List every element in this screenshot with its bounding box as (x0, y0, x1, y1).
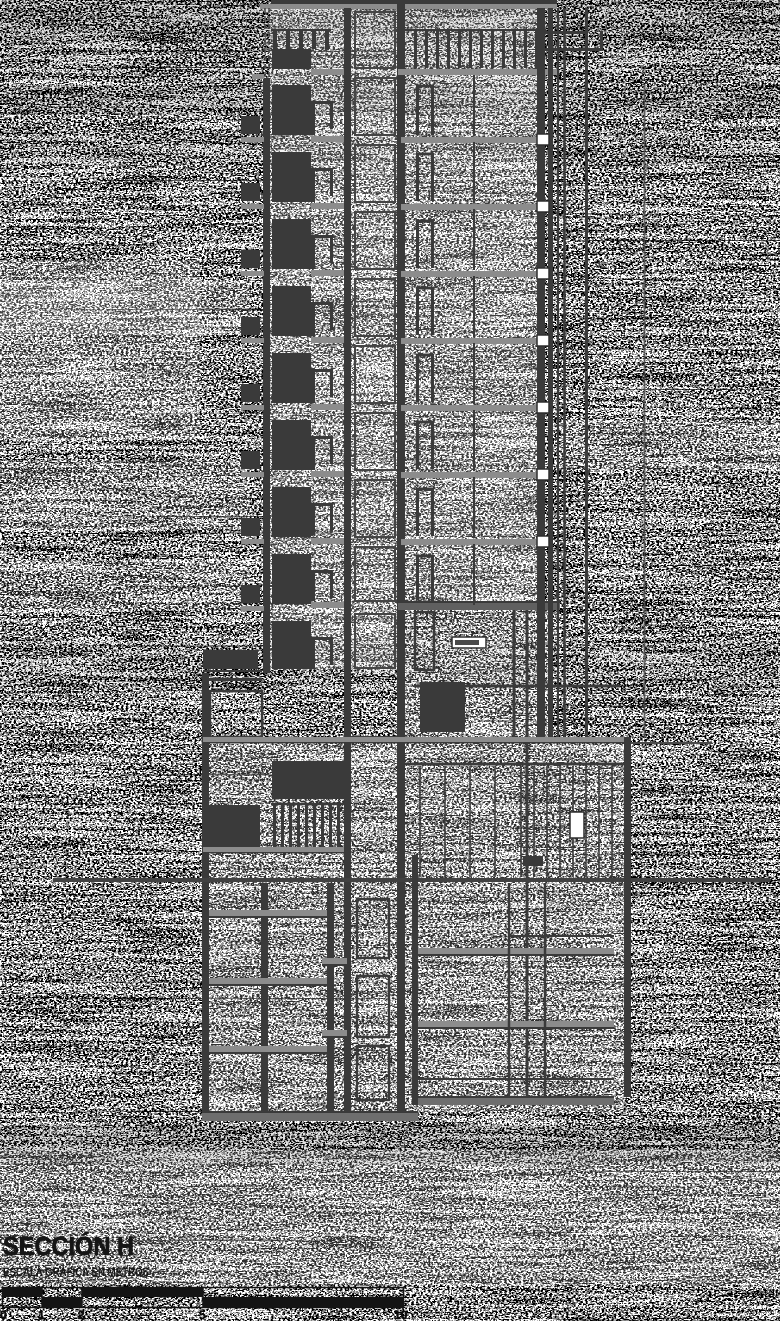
svg-text:0: 0 (0, 1308, 7, 1321)
svg-text:1: 1 (38, 1308, 45, 1321)
svg-text:10: 10 (394, 1308, 408, 1321)
svg-text:ESCALA GRÁFICA EN METROS: ESCALA GRÁFICA EN METROS (3, 1264, 149, 1279)
svg-text:SECCIÓN H: SECCIÓN H (3, 1231, 134, 1261)
svg-text:5: 5 (199, 1308, 206, 1321)
svg-text:2: 2 (78, 1308, 85, 1321)
